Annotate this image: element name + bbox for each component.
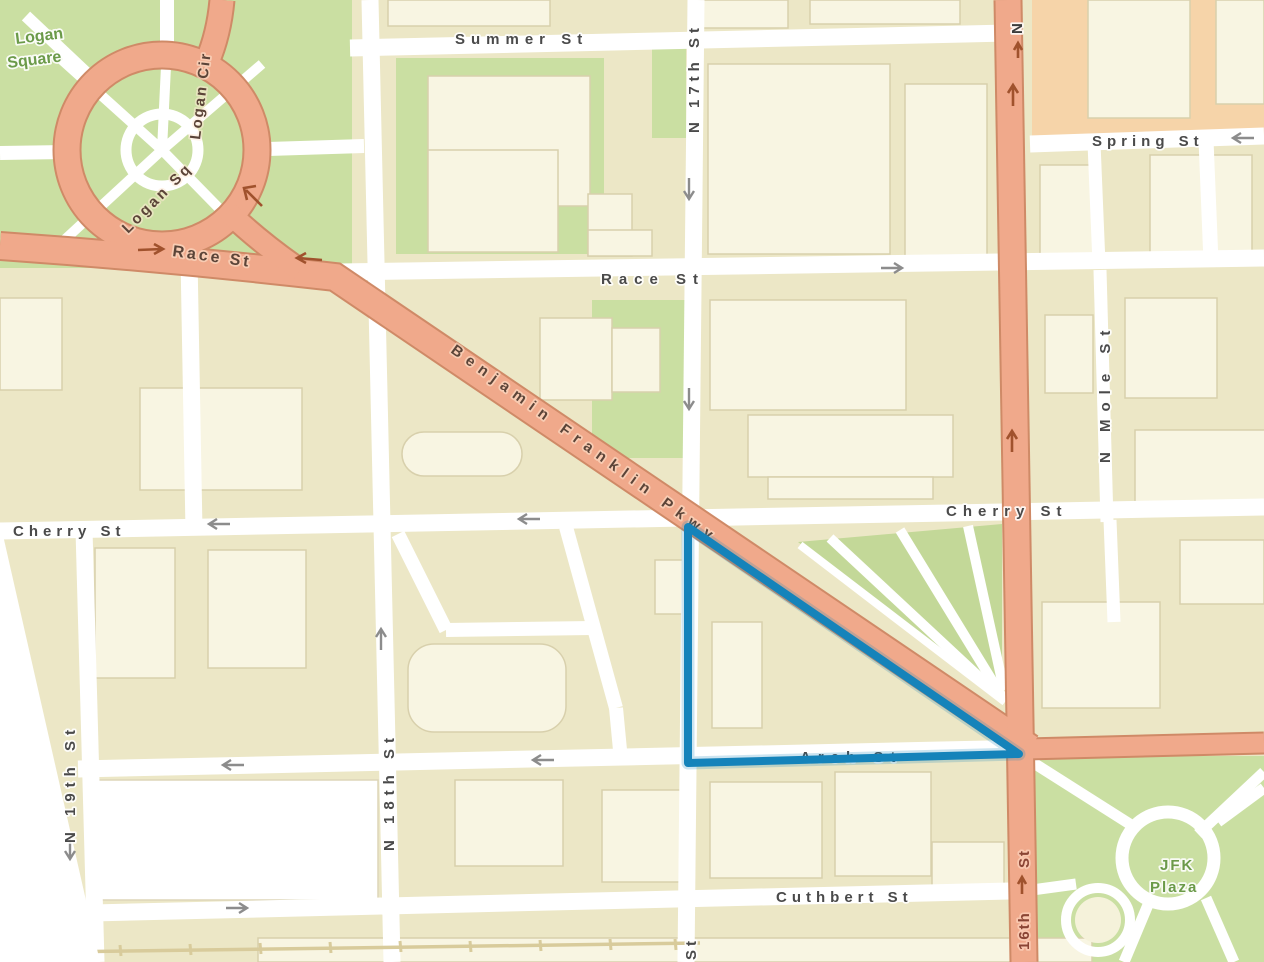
- white-block: [98, 780, 378, 900]
- building: [712, 622, 762, 728]
- n17th-st-label: N 17th St: [686, 23, 703, 133]
- race-st-label: Race St: [601, 271, 705, 288]
- building: [1088, 0, 1190, 118]
- n-mole-st-label: N Mole St: [1097, 323, 1114, 463]
- building: [1180, 540, 1264, 604]
- jfk-fountain: [1075, 897, 1121, 943]
- logan-spoke: [162, 66, 166, 150]
- building: [588, 230, 652, 256]
- jfk-path: [1032, 884, 1076, 890]
- building: [905, 84, 987, 256]
- building: [1125, 298, 1217, 398]
- building: [140, 388, 302, 490]
- building: [835, 772, 931, 876]
- building: [768, 477, 933, 499]
- building: [402, 432, 522, 476]
- alley-stub: [616, 708, 620, 750]
- map-view[interactable]: Logan Square Logan Sq Logan Cir Race St …: [0, 0, 1264, 962]
- alley-horizontal: [446, 628, 592, 630]
- cherry-st-east-label: Cherry St: [946, 503, 1068, 520]
- building: [810, 0, 960, 24]
- sixteenth-st-label-part2: St: [1016, 849, 1033, 868]
- building: [540, 318, 612, 400]
- building: [708, 64, 890, 254]
- jfk-plaza-label-line2: Plaza: [1150, 879, 1198, 896]
- mole-st-lower-road: [1110, 520, 1114, 622]
- building: [612, 328, 660, 392]
- building: [1135, 430, 1264, 510]
- building: [602, 790, 690, 882]
- cuthbert-st-label: Cuthbert St: [776, 889, 913, 906]
- building: [1216, 0, 1264, 104]
- building: [710, 782, 822, 878]
- n19th-st-label: N 19th St: [62, 724, 79, 843]
- seventeenth-partial-label: St: [683, 937, 700, 960]
- building: [0, 298, 62, 390]
- sixteenth-st-label-part1: 16th: [1016, 911, 1033, 950]
- n17th-st-road: [686, 0, 696, 962]
- building: [388, 0, 550, 26]
- building: [700, 0, 788, 28]
- summer-st-label: Summer St: [455, 31, 588, 48]
- cherry-st-west-label: Cherry St: [13, 523, 126, 540]
- n19th-st-road: [84, 530, 96, 962]
- green-strip: [652, 38, 686, 138]
- map-canvas[interactable]: Logan Square Logan Sq Logan Cir Race St …: [0, 0, 1264, 962]
- mole-st-upper-road: [1094, 143, 1099, 264]
- building: [95, 548, 175, 678]
- building: [1040, 165, 1094, 261]
- sixteenth-st-road: [1008, 0, 1024, 962]
- building: [408, 644, 566, 732]
- building: [1045, 315, 1093, 393]
- n19th-st-north-road: [189, 258, 194, 531]
- spring-st-label: Spring St: [1092, 133, 1204, 150]
- arch-east-road: [1026, 743, 1264, 749]
- side-street: [1206, 140, 1211, 262]
- jfk-plaza-label-line1: JFK: [1160, 857, 1194, 874]
- n18th-st-label: N 18th St: [381, 732, 398, 851]
- building: [748, 415, 953, 477]
- building: [1042, 602, 1160, 708]
- building: [932, 842, 1004, 890]
- building: [710, 300, 906, 410]
- building: [208, 550, 306, 668]
- building: [455, 780, 563, 866]
- sixteenth-st-n-label: N: [1009, 23, 1026, 34]
- ring-east-street: [268, 146, 364, 149]
- building: [428, 150, 558, 252]
